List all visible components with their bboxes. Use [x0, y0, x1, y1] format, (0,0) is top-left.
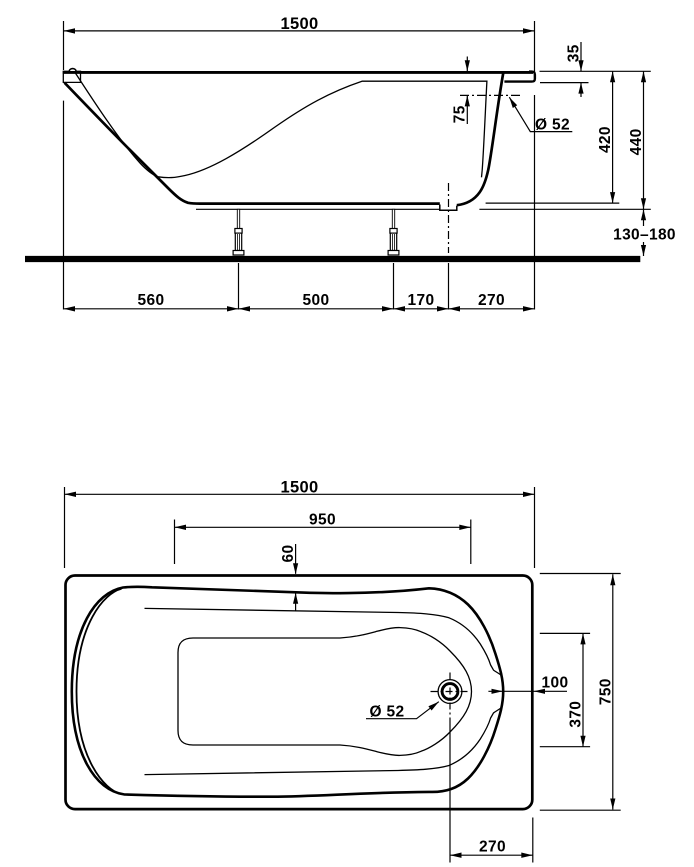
- svg-text:130–180: 130–180: [613, 226, 676, 243]
- svg-text:560: 560: [138, 292, 165, 309]
- svg-text:1500: 1500: [281, 15, 319, 33]
- svg-text:35: 35: [565, 44, 582, 62]
- svg-text:270: 270: [479, 839, 506, 856]
- svg-text:750: 750: [597, 678, 614, 705]
- svg-text:170: 170: [408, 292, 435, 309]
- svg-text:100: 100: [542, 675, 569, 692]
- svg-text:60: 60: [280, 545, 297, 563]
- svg-text:440: 440: [628, 128, 645, 155]
- svg-text:270: 270: [478, 292, 505, 309]
- svg-text:500: 500: [303, 292, 330, 309]
- svg-text:420: 420: [597, 126, 614, 153]
- svg-text:75: 75: [452, 105, 469, 123]
- svg-text:950: 950: [309, 511, 336, 528]
- svg-text:Ø 52: Ø 52: [369, 703, 404, 720]
- svg-text:1500: 1500: [281, 478, 319, 496]
- svg-text:370: 370: [568, 701, 585, 728]
- svg-text:Ø 52: Ø 52: [535, 116, 570, 133]
